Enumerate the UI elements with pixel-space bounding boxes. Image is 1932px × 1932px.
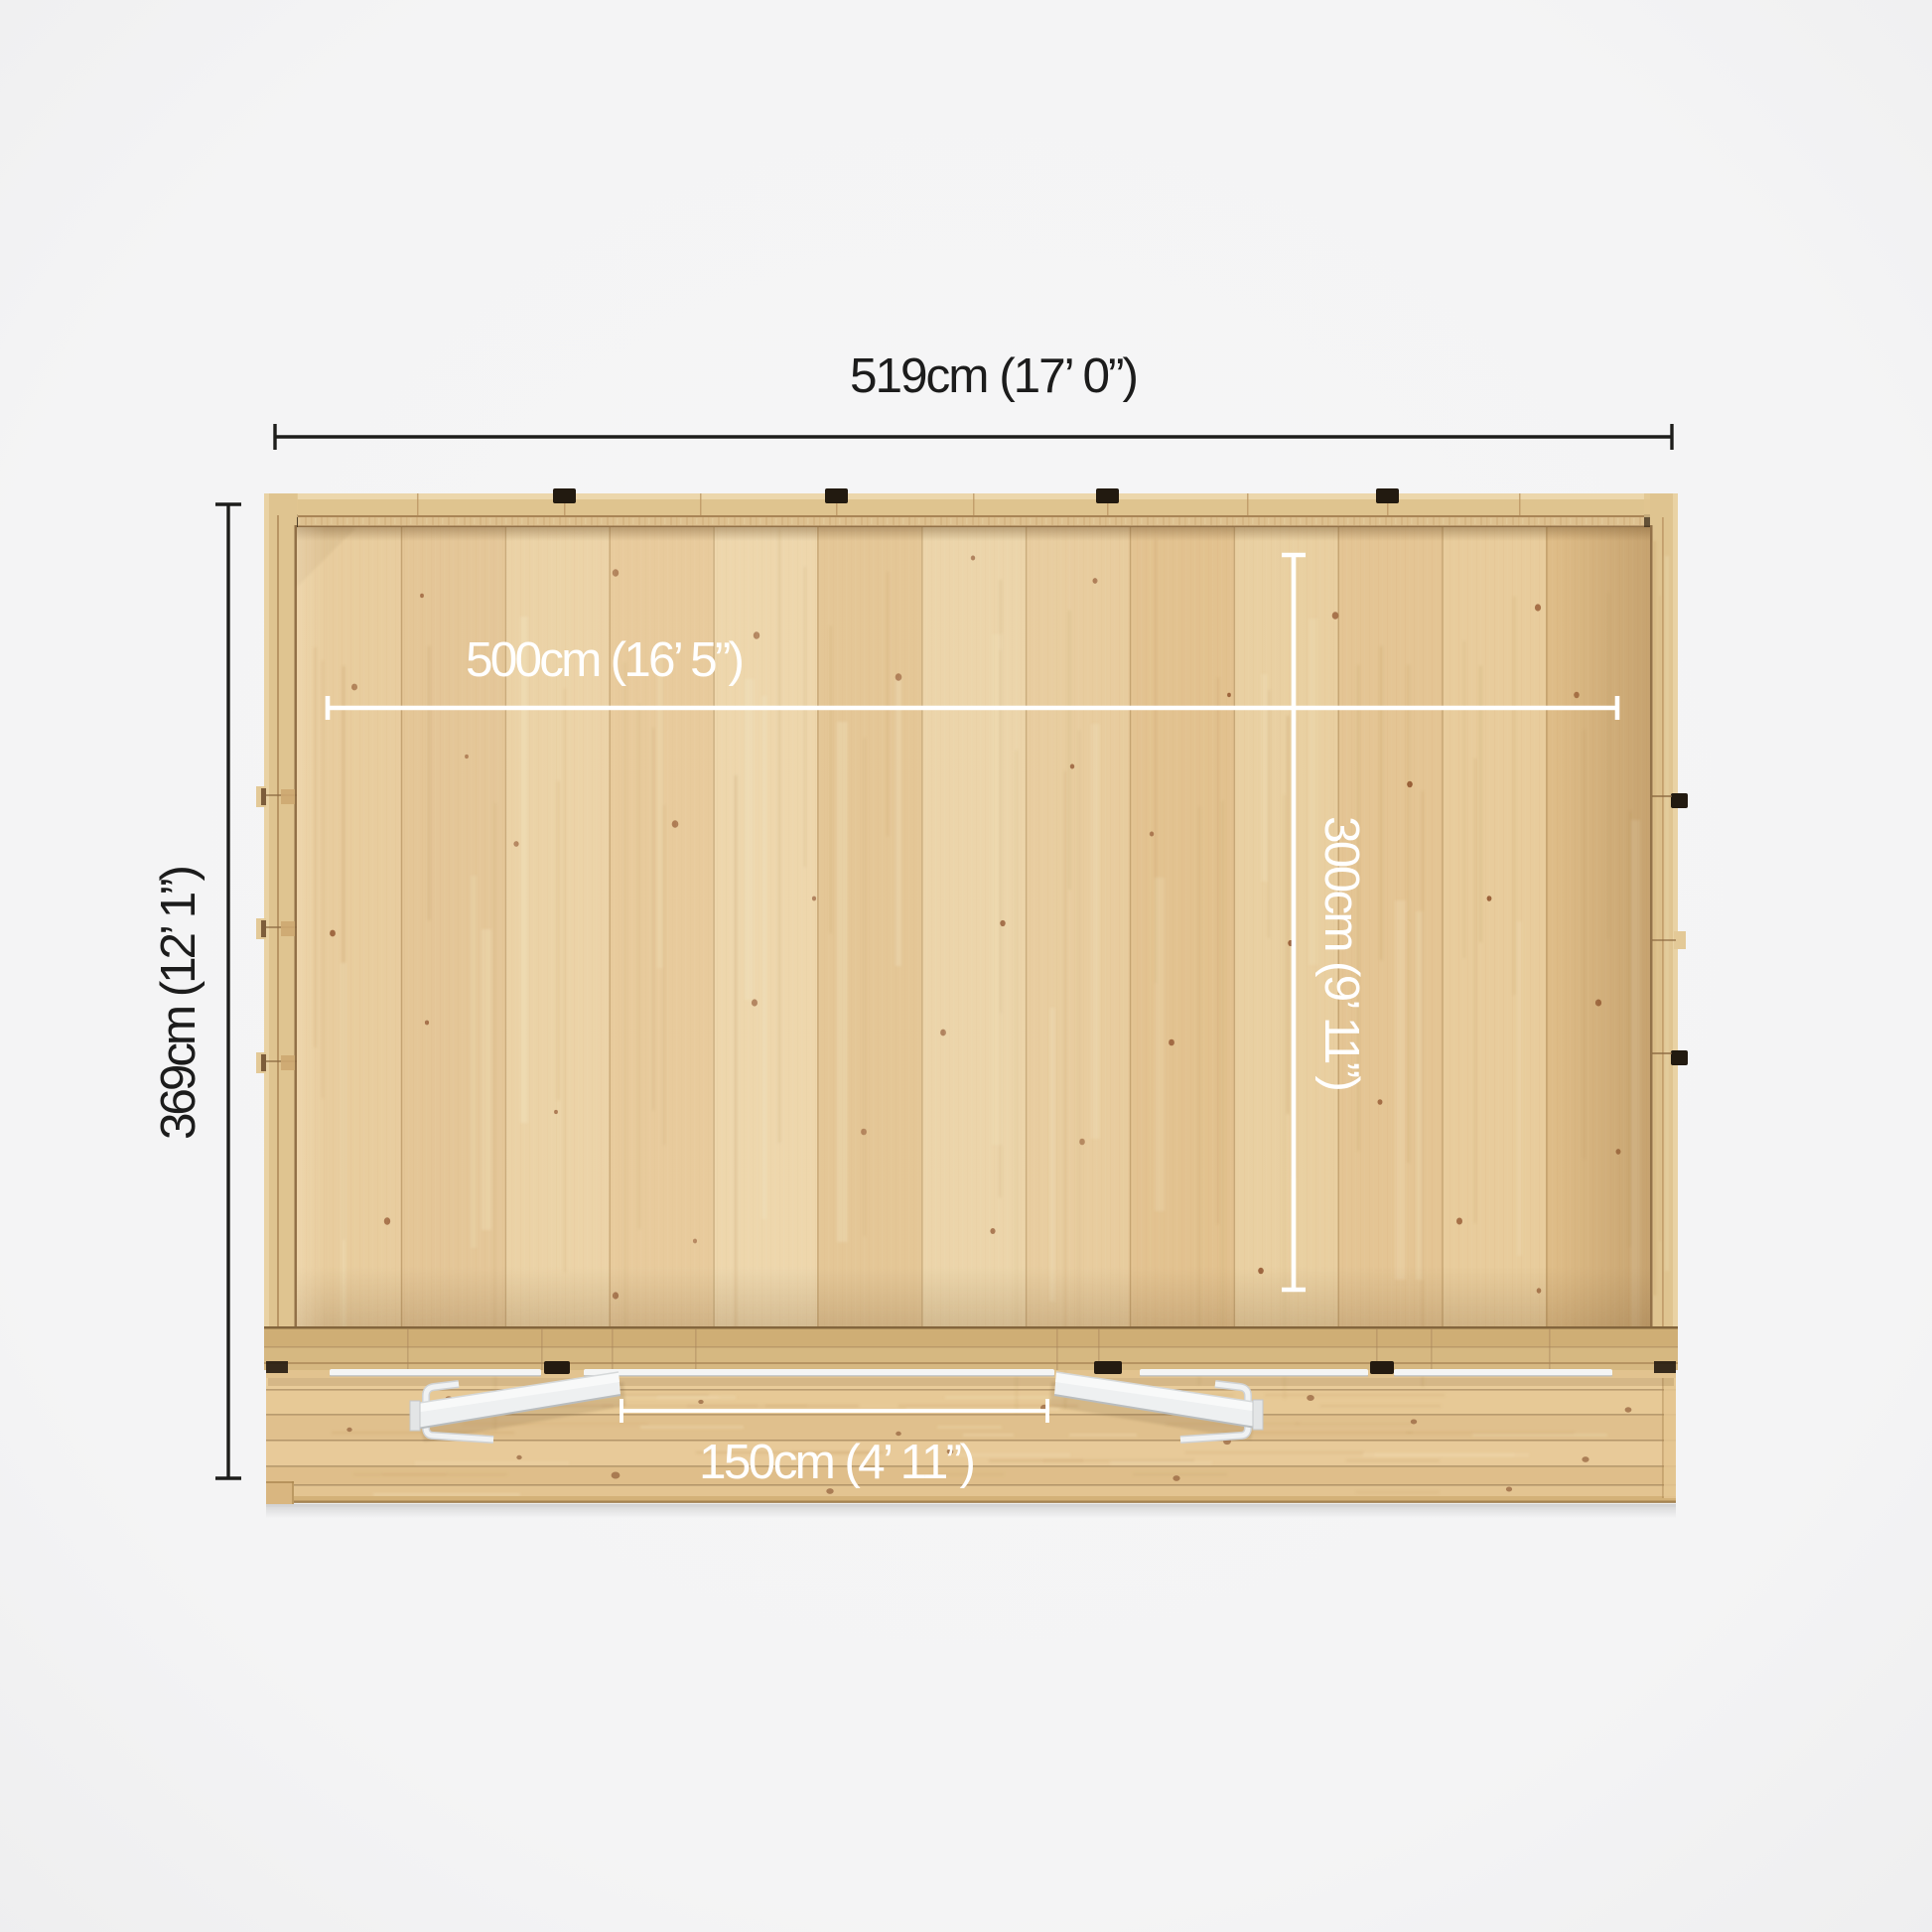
svg-text:369cm (12’ 1”): 369cm (12’ 1”) <box>151 865 206 1140</box>
svg-text:519cm (17’ 0”): 519cm (17’ 0”) <box>850 348 1139 403</box>
svg-text:150cm (4’ 11”): 150cm (4’ 11”) <box>699 1435 976 1489</box>
svg-text:500cm (16’ 5”): 500cm (16’ 5”) <box>466 632 745 687</box>
svg-text:300cm (9’ 11”): 300cm (9’ 11”) <box>1314 816 1369 1092</box>
